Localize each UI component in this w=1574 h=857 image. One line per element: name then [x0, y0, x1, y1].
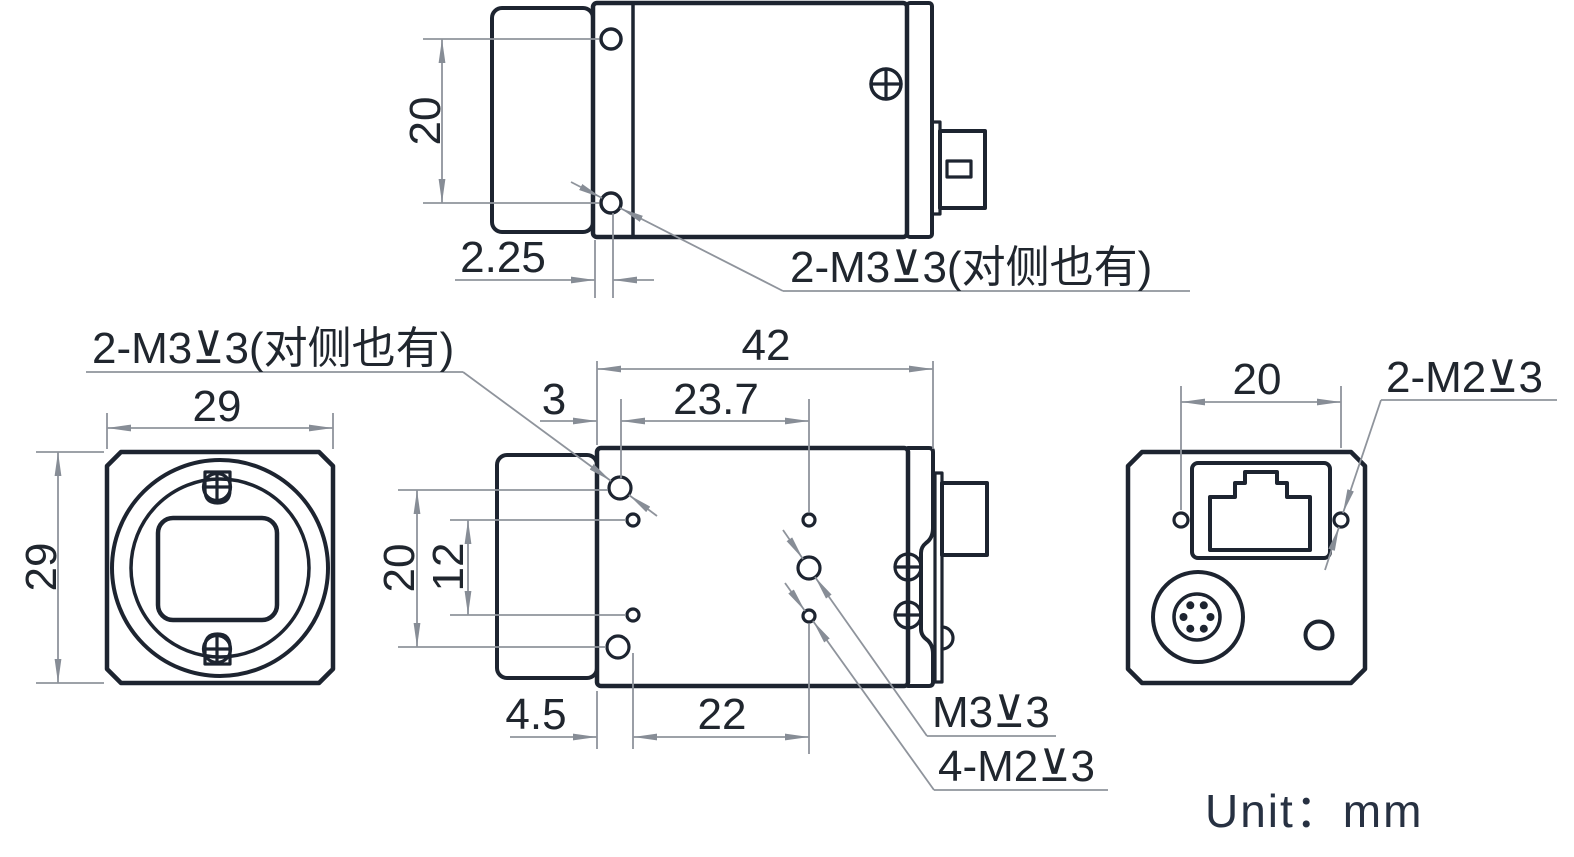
thumbscrew-bump: [942, 627, 953, 649]
screw-icon: [895, 554, 921, 580]
dim-value: 12: [424, 543, 473, 592]
unit-note: Unit：mm: [1205, 785, 1423, 837]
body-outline: [597, 448, 908, 686]
drawing-canvas: 20 2.25 2-M3⊻3(对侧也有): [0, 0, 1574, 857]
m3-thread-hole: [607, 636, 629, 658]
dim-height-front: 29: [17, 452, 104, 683]
dim-value: 4.5: [505, 690, 566, 739]
m2-thread-hole: [803, 514, 815, 526]
dim-value: 20: [375, 544, 424, 593]
thread-callout: 2-M2⊻3: [1386, 353, 1543, 402]
dim-front-to-m3: 3: [540, 375, 621, 478]
thread-callout: 4-M2⊻3: [938, 742, 1095, 791]
status-led-indicator: [1306, 622, 1333, 649]
dim-value: 2.25: [460, 233, 546, 282]
dim-value: 20: [401, 97, 450, 146]
m2-thread-hole: [627, 609, 639, 621]
thread-callout: M3⊻3: [932, 688, 1050, 737]
m2-thread-hole: [1334, 513, 1348, 527]
thread-callout: 2-M3⊻3(对侧也有): [92, 324, 454, 373]
screw-icon: [895, 602, 921, 628]
lens-block-outline: [492, 8, 593, 232]
dim-value: 29: [17, 543, 66, 592]
rear-view: 20 2-M2⊻3: [1128, 353, 1557, 683]
screw-icon: [871, 69, 901, 99]
dim-width-front: 29: [107, 382, 333, 449]
mounting-hole-icon: [601, 193, 621, 213]
dim-value: 42: [742, 321, 791, 370]
connector-latch-slot: [947, 161, 971, 177]
dim-value: 3: [542, 375, 566, 424]
body-outline: [593, 3, 907, 237]
screw-icon: [204, 634, 231, 664]
dim-value: 20: [1233, 355, 1282, 404]
camera-dimension-drawing: 20 2.25 2-M3⊻3(对侧也有): [0, 0, 1574, 857]
gige-connector-outline: [932, 122, 985, 214]
dim-value: 23.7: [673, 375, 759, 424]
gige-connector-outline: [942, 483, 987, 555]
lens-mount-outer-ring: [112, 460, 328, 676]
screw-icon: [204, 472, 231, 503]
callout-thread-rear: 2-M2⊻3: [1325, 353, 1557, 570]
dim-value: 22: [698, 690, 747, 739]
dim-m3-pitch-side: 20: [375, 490, 608, 647]
dim-m3-span: 23.7: [621, 375, 809, 512]
front-view: 29 29: [17, 382, 333, 683]
m3-thread-hole: [798, 557, 820, 579]
thread-callout: 2-M3⊻3(对侧也有): [790, 243, 1152, 292]
callout-thread-side-front: 2-M3⊻3(对侧也有): [86, 324, 657, 516]
dim-value: 29: [193, 382, 242, 431]
dim-m2-span: 22: [633, 624, 809, 754]
m3-thread-hole: [609, 477, 631, 499]
m2-thread-hole: [627, 514, 639, 526]
rear-plate-outline: [907, 3, 932, 237]
top-view: 20 2.25 2-M3⊻3(对侧也有): [401, 3, 1190, 298]
dim-length-side: 42: [597, 321, 933, 449]
dim-hole-offset-top: 2.25: [455, 213, 654, 298]
sensor-window: [158, 518, 277, 620]
m2-thread-hole: [803, 610, 815, 622]
dim-front-to-m2: 4.5: [505, 653, 633, 749]
power-io-connector-icon: [1153, 572, 1243, 662]
lens-block-outline: [497, 455, 597, 678]
dim-hole-pitch-top: 20: [401, 39, 599, 203]
dim-hole-pitch-rear: 20: [1181, 355, 1341, 510]
mounting-hole-icon: [601, 29, 621, 49]
m2-thread-hole: [1174, 513, 1188, 527]
rj45-jack-icon: [1210, 472, 1310, 550]
